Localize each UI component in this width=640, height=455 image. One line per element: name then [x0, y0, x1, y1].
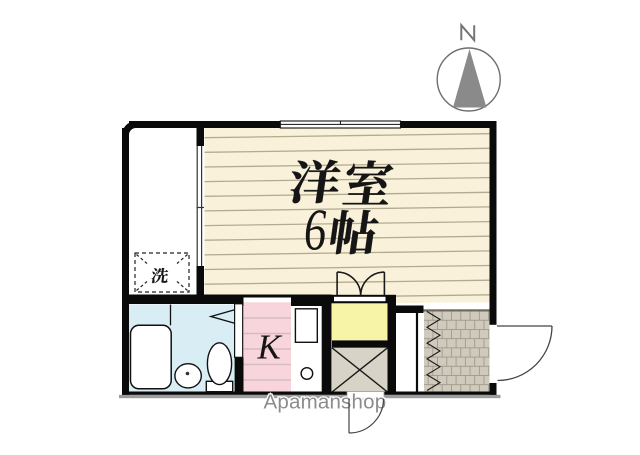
- svg-text:Apamanshop: Apamanshop: [264, 391, 387, 414]
- svg-text:6: 6: [304, 198, 326, 263]
- svg-text:K: K: [257, 328, 283, 367]
